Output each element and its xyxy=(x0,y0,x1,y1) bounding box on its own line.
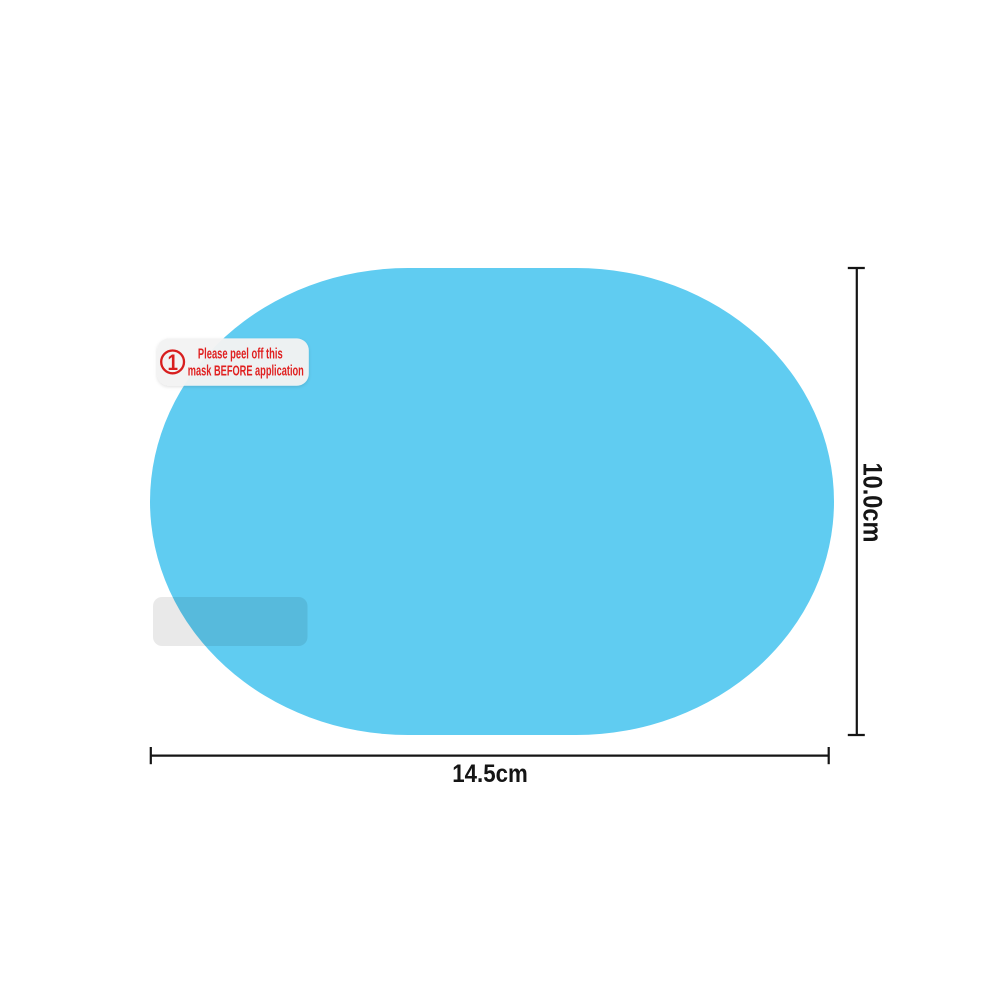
svg-text:1: 1 xyxy=(167,350,178,375)
svg-text:mask BEFORE application: mask BEFORE application xyxy=(188,363,304,379)
svg-text:Please peel off this: Please peel off this xyxy=(198,347,283,363)
svg-text:14.5cm: 14.5cm xyxy=(452,760,528,788)
svg-text:10.0cm: 10.0cm xyxy=(858,463,888,543)
